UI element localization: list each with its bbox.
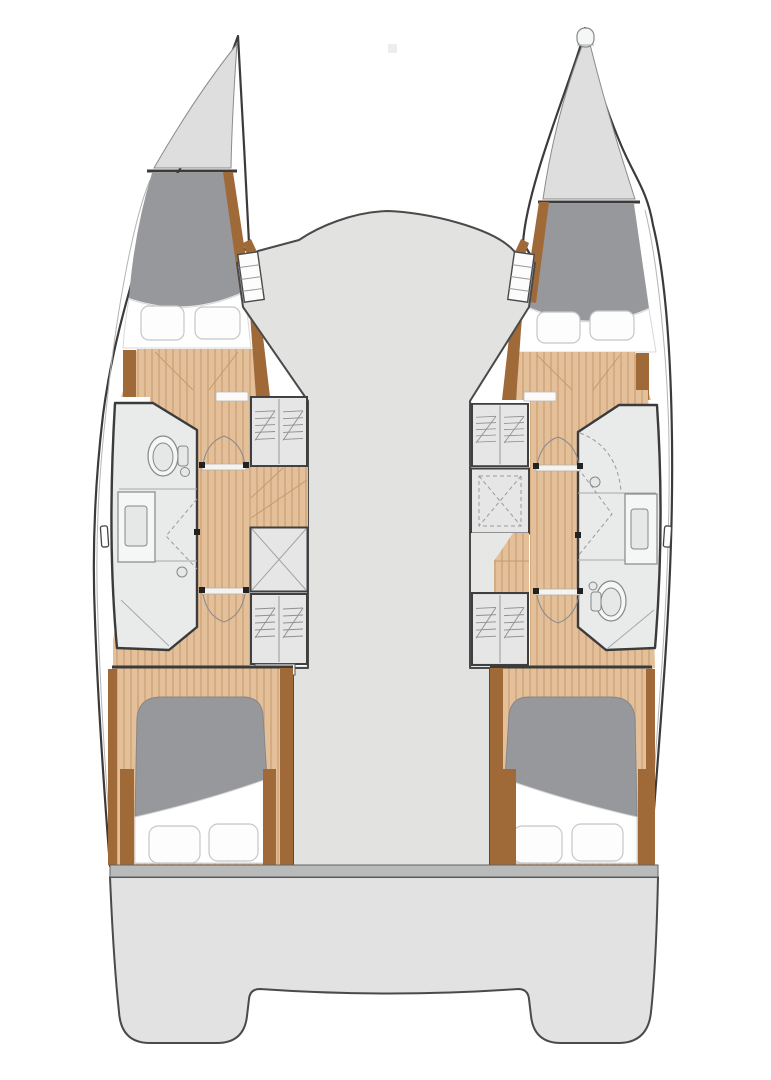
bow-roller-icon bbox=[577, 28, 594, 47]
pillow bbox=[195, 307, 240, 339]
starboard-bow-locker bbox=[538, 28, 640, 202]
flush-knob bbox=[181, 468, 190, 477]
mast-base-mark bbox=[388, 44, 397, 53]
wood-trim bbox=[503, 769, 516, 865]
transom-step-band bbox=[110, 865, 658, 877]
stern-platform bbox=[110, 877, 658, 1043]
port-midship bbox=[111, 390, 250, 668]
shelved-locker bbox=[472, 404, 528, 466]
pillow bbox=[572, 824, 623, 861]
wood-trim bbox=[108, 669, 117, 865]
threshold bbox=[216, 392, 248, 401]
wood-trim bbox=[263, 769, 276, 865]
door-sill bbox=[536, 465, 580, 471]
port-bow-triangle bbox=[154, 44, 237, 168]
shower-drain-icon bbox=[177, 567, 187, 577]
wood-trim bbox=[123, 350, 136, 397]
pillow bbox=[537, 312, 580, 343]
door-sill bbox=[536, 589, 580, 595]
starboard-aft-cabin bbox=[490, 667, 655, 865]
pillow bbox=[590, 311, 634, 340]
shelved-locker bbox=[251, 397, 307, 466]
pillow bbox=[209, 824, 258, 861]
pillow bbox=[141, 306, 184, 340]
threshold bbox=[524, 392, 556, 401]
wood-surface bbox=[250, 467, 308, 528]
shelved-locker bbox=[251, 594, 307, 664]
port-storage-column bbox=[250, 397, 308, 675]
wood-trim bbox=[280, 668, 293, 865]
port-hull-window bbox=[100, 526, 108, 547]
shelved-locker bbox=[472, 593, 528, 665]
transom-platform-shape bbox=[110, 877, 658, 1043]
pillow bbox=[513, 826, 562, 863]
door-sill bbox=[202, 464, 246, 470]
dashed-cross-locker bbox=[471, 469, 529, 534]
starboard-hull-window bbox=[663, 526, 671, 547]
port-aft-cabin bbox=[108, 667, 293, 865]
wood-trim bbox=[120, 769, 134, 865]
starboard-midship bbox=[524, 390, 661, 668]
toilet-cistern bbox=[591, 592, 601, 611]
catamaran-floorplan bbox=[0, 0, 771, 1080]
port-bow-locker bbox=[147, 44, 237, 171]
floorplan-svg bbox=[0, 0, 771, 1080]
flush-knob bbox=[589, 582, 597, 590]
wood-trim bbox=[490, 668, 503, 865]
toilet-cistern bbox=[178, 446, 188, 466]
door-sill bbox=[202, 588, 246, 594]
pillow bbox=[149, 826, 200, 863]
port-forward-floor bbox=[121, 349, 269, 397]
wood-trim bbox=[646, 669, 655, 865]
